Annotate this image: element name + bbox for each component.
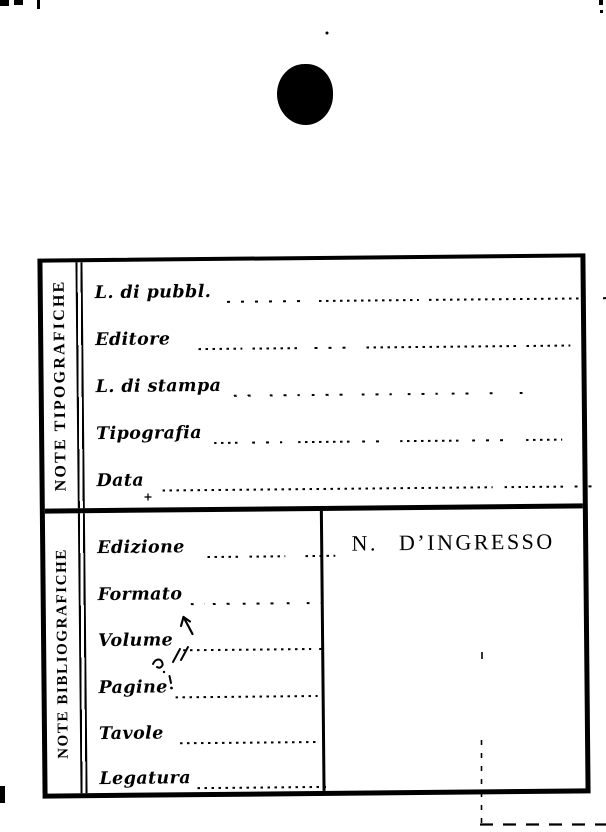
field-label: L. di stampa	[96, 376, 222, 397]
ingresso-title: N. D’INGRESSO	[323, 528, 583, 556]
field-row-tipografia: Tipografia	[84, 419, 578, 450]
side-label-tipografiche: NOTE TIPOGRAFICHE	[50, 279, 70, 491]
scan-speck	[14, 0, 23, 5]
scanned-catalog-card-page: NOTE TIPOGRAFICHE L. di pubbl. Editore L…	[0, 0, 606, 832]
field-label: Tavole	[99, 723, 164, 744]
scan-dot	[326, 32, 329, 35]
field-row-formato: Formato	[86, 583, 317, 611]
field-label: Editore	[95, 329, 170, 350]
side-label-column: NOTE TIPOGRAFICHE	[42, 262, 77, 508]
field-label: Data	[96, 471, 144, 491]
side-label-column: NOTE BIBLIOGRAFICHE	[45, 513, 81, 793]
field-row-tavole: Tavole	[87, 722, 318, 750]
scan-speck	[600, 10, 603, 13]
field-row-edizione: Edizione	[85, 536, 316, 564]
scan-speck	[37, 0, 40, 9]
bibliografiche-fields: Edizione Formato Volume Pagine Tavole	[85, 511, 323, 793]
field-label: L. di pubbl.	[95, 282, 212, 303]
field-row-l-di-stampa: L. di stampa	[84, 372, 578, 403]
punch-hole	[277, 64, 333, 125]
catalog-card: NOTE TIPOGRAFICHE L. di pubbl. Editore L…	[37, 253, 590, 798]
field-row-volume: Volume	[86, 629, 317, 657]
field-row-data: Data	[84, 466, 578, 497]
field-label: Pagine	[98, 677, 167, 698]
field-row-pagine: Pagine	[86, 676, 317, 704]
field-label: Legatura	[99, 768, 191, 789]
field-label: Volume	[98, 630, 173, 651]
field-label: Formato	[98, 584, 183, 605]
scan-speck	[599, 0, 603, 5]
section-note-bibliografiche: NOTE BIBLIOGRAFICHE Edizione Formato Vol…	[45, 508, 586, 793]
field-row-editore: Editore	[83, 325, 577, 356]
field-row-l-di-pubbl: L. di pubbl.	[83, 278, 577, 309]
field-label: Edizione	[97, 537, 185, 558]
section-note-tipografiche: NOTE TIPOGRAFICHE L. di pubbl. Editore L…	[42, 257, 582, 508]
side-label-bibliografiche: NOTE BIBLIOGRAFICHE	[53, 548, 72, 759]
tipografiche-fields: L. di pubbl. Editore L. di stampa Tipogr…	[82, 257, 582, 508]
scan-speck	[0, 786, 5, 803]
scan-speck	[0, 0, 9, 6]
ingresso-panel: N. D’INGRESSO	[323, 508, 586, 790]
field-row-legatura: Legatura	[87, 767, 318, 795]
field-label: Tipografia	[96, 423, 202, 444]
